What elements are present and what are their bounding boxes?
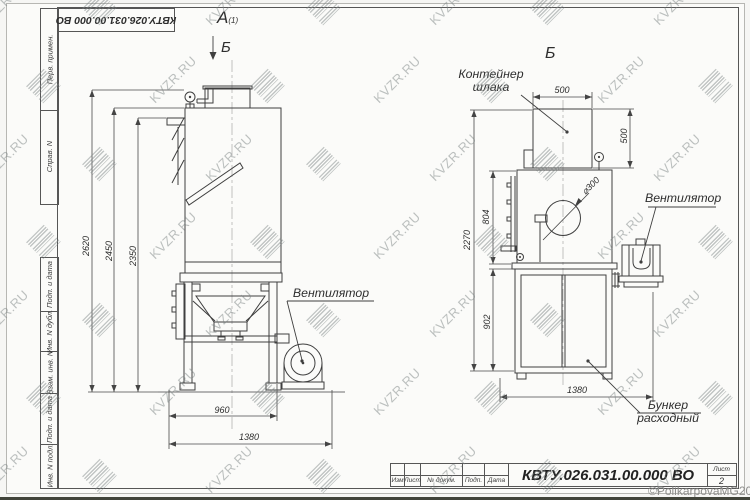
frame-cell-label: Справ. N — [45, 141, 54, 172]
section-b-arrow-label: Б — [221, 39, 231, 56]
titleblock-empty-cell — [405, 464, 421, 475]
top-doc-number: КВТУ.026.031.00.000 ВО — [56, 14, 176, 26]
view-a-note: (1) — [228, 16, 238, 25]
frame-cell-label: Подп. и дата — [45, 261, 54, 308]
drawing-page: Перв. примен. Справ. N Подп. и дата Инв.… — [0, 0, 750, 500]
frame-cell: Справ. N — [41, 111, 58, 202]
top-doc-number-box: КВТУ.026.031.00.000 ВО — [57, 8, 175, 32]
feed-bunker-line2: расходный — [631, 412, 705, 425]
titleblock-empty-cell — [391, 464, 405, 475]
frame-cell-label: Подп. и дата — [45, 396, 54, 443]
dim-body-height: 804 — [481, 209, 491, 224]
fan-callout-left: Вентилятор — [285, 287, 377, 300]
dim-width-overall-right: 1380 — [567, 385, 587, 395]
dim-height-body: 2450 — [104, 241, 114, 261]
dim-width-frame: 960 — [214, 405, 229, 415]
frame-cell-label: Инв. N дубл. — [45, 310, 54, 353]
frame-cell: Подп. и дата — [41, 258, 58, 312]
titleblock-doc-number: КВТУ.026.031.00.000 ВО — [509, 464, 708, 486]
titleblock-empty-cell — [485, 464, 509, 475]
view-b-label: Б — [545, 45, 555, 63]
slag-container-callout: Контейнер шлака — [456, 68, 526, 94]
frame-left-column-top: Перв. примен. Справ. N — [40, 8, 59, 205]
slag-container-line2: шлака — [456, 81, 526, 94]
dim-container-height: 500 — [619, 128, 629, 143]
dim-bunker-height: 902 — [482, 314, 492, 329]
frame-cell: Подп. и дата — [41, 394, 58, 445]
dim-width-overall-left: 1380 — [239, 432, 259, 442]
titleblock-col-podp: Подп. — [463, 475, 485, 486]
dim-container-width: 500 — [554, 85, 569, 95]
view-a-label: А(1) — [217, 8, 238, 28]
frame-cell: Инв. N дубл. — [41, 312, 58, 352]
feed-bunker-callout: Бункер расходный — [631, 399, 705, 425]
dim-height-overall: 2620 — [81, 236, 91, 256]
frame-cell: Инв. N подл. — [41, 445, 58, 486]
titleblock-col-data: Дата — [485, 475, 509, 486]
titleblock-col-docnum: № докум. — [421, 475, 463, 486]
titleblock-col-izm: Изм — [391, 475, 405, 486]
titleblock-empty-cell — [421, 464, 463, 475]
view-a-letter: А — [217, 8, 228, 27]
frame-cell: Взам. инв. N — [41, 352, 58, 394]
titleblock-sheet-label: Лист — [707, 464, 736, 475]
frame-left-column-bottom: Подп. и дата Инв. N дубл. Взам. инв. N П… — [40, 257, 59, 489]
dim-height-inlet: 2350 — [128, 246, 138, 266]
fan-callout-right: Вентилятор — [645, 192, 721, 205]
frame-cell-label: Взам. инв. N — [45, 351, 54, 395]
frame-cell-label: Перв. примен. — [45, 35, 54, 85]
frame-cell-label: Инв. N подл. — [45, 444, 54, 488]
dim-height-total: 2270 — [462, 230, 472, 250]
titleblock-col-list: Лист — [405, 475, 421, 486]
copyright-watermark: ©PolikarpovaMG2021 — [648, 484, 750, 498]
titleblock-empty-cell — [463, 464, 485, 475]
